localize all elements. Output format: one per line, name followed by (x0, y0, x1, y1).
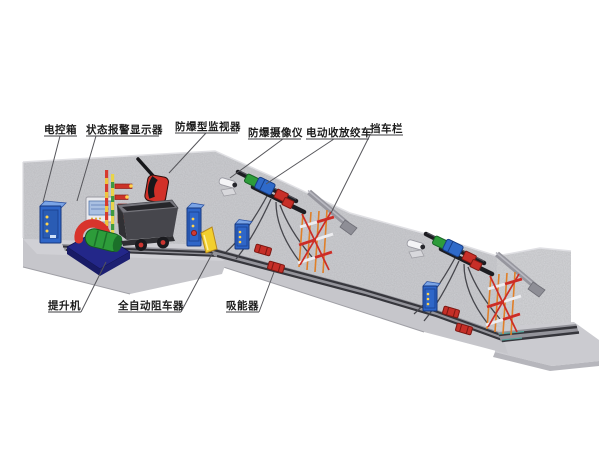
mine-cart (117, 200, 178, 251)
mine-incline-safety-diagram: 电控箱 状态报警显示器 防爆型监视器 防爆摄像仪 电动收放绞车 挡车栏 (0, 0, 600, 450)
label-electric-control-box: 电控箱 (44, 123, 77, 136)
label-hoist: 提升机 (48, 299, 81, 312)
callout-explosion-proof-camera: 防爆摄像仪 (230, 126, 303, 178)
label-explosion-proof-monitor: 防爆型监视器 (175, 120, 241, 133)
label-energy-absorber: 吸能器 (226, 299, 259, 312)
diagram-canvas: 电控箱 状态报警显示器 防爆型监视器 防爆摄像仪 电动收放绞车 挡车栏 (0, 0, 600, 450)
label-status-alarm-display: 状态报警显示器 (86, 123, 163, 136)
winch-power-cabinet (187, 203, 204, 246)
label-car-blocking-barrier: 挡车栏 (370, 122, 403, 135)
label-automatic-car-stopper: 全自动阻车器 (117, 299, 184, 312)
label-explosion-proof-camera: 防爆摄像仪 (248, 126, 303, 139)
label-electric-winch: 电动收放绞车 (306, 126, 372, 139)
